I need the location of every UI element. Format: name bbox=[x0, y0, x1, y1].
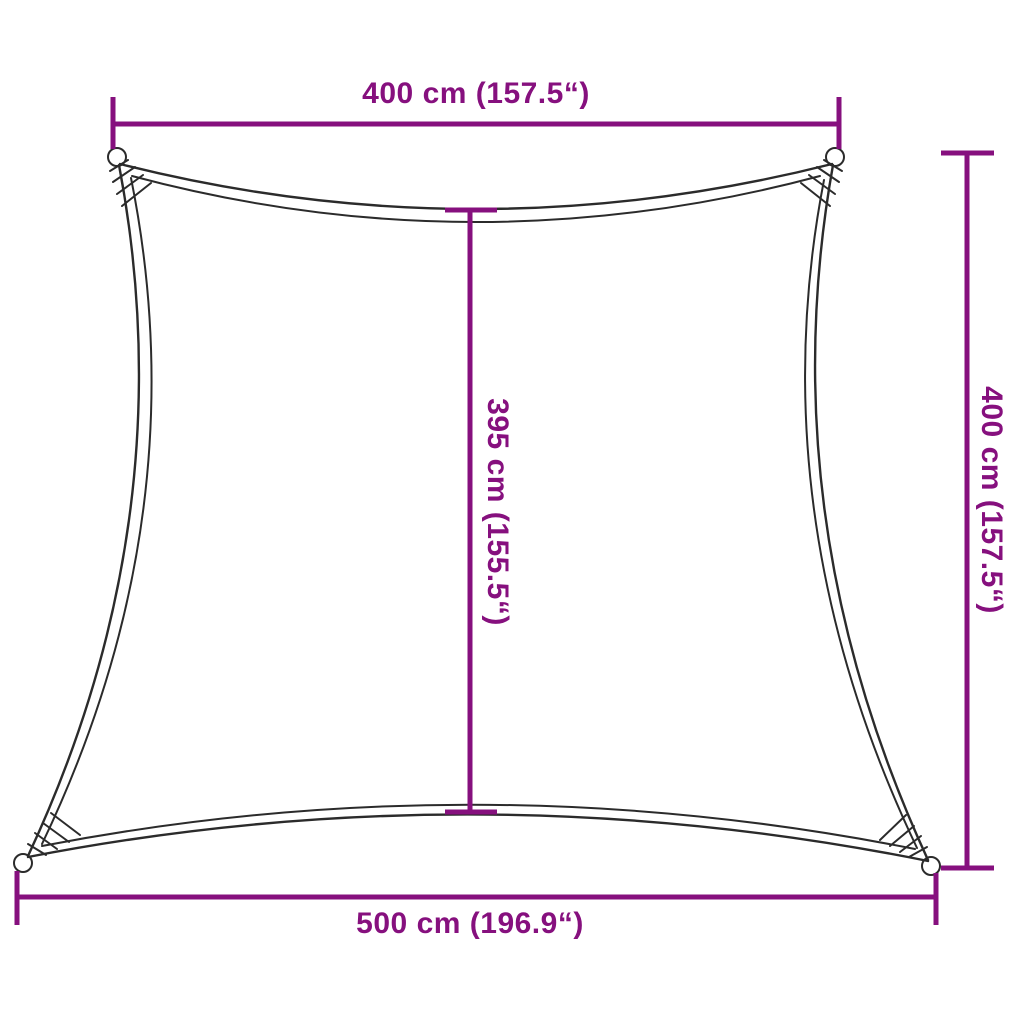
sail-corner-top-left bbox=[108, 148, 151, 206]
sail-corner-top-right bbox=[801, 148, 844, 206]
dimension-label-middle: 395 cm (155.5“) bbox=[480, 398, 514, 626]
sail-edge-bottom-outer bbox=[28, 814, 928, 861]
sail-outline bbox=[28, 164, 928, 861]
sail-edge-left-outer bbox=[28, 165, 139, 856]
sail-edge-right-inner bbox=[805, 180, 917, 848]
sail-edge-top-inner bbox=[132, 176, 820, 222]
corner-loop-icon bbox=[14, 854, 32, 872]
dimension-label-right: 400 cm (157.5“) bbox=[974, 386, 1008, 614]
sail-edge-right-outer bbox=[815, 165, 928, 860]
dimension-label-top: 400 cm (157.5“) bbox=[362, 77, 590, 111]
sail-corner-bottom-left bbox=[14, 813, 80, 872]
sail-edge-top-outer bbox=[120, 164, 832, 209]
dimension-label-bottom: 500 cm (196.9“) bbox=[356, 907, 584, 941]
corner-loop-icon bbox=[922, 857, 940, 875]
diagram-canvas: 400 cm (157.5“) 395 cm (155.5“) 400 cm (… bbox=[0, 0, 1024, 1024]
